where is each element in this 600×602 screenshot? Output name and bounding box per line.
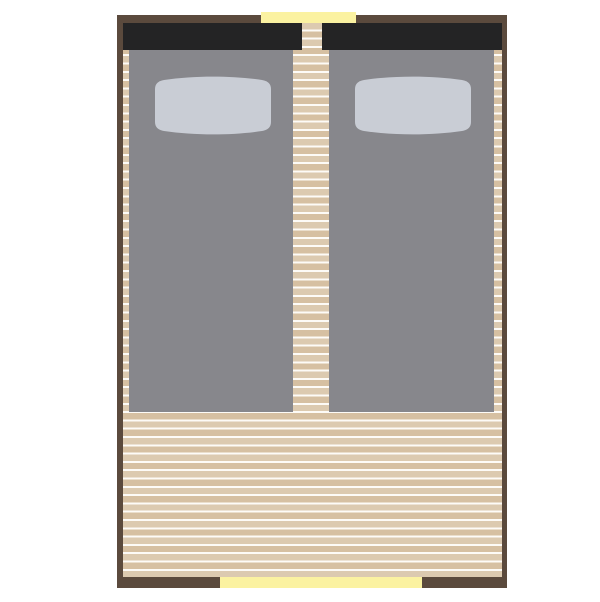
- floor-plan-canvas: [0, 0, 600, 602]
- right-bed: [329, 50, 494, 412]
- left-pillow-icon: [154, 73, 272, 138]
- pillow-shape: [155, 77, 271, 135]
- room-walls: [117, 15, 507, 588]
- bottom-door-opening: [220, 577, 422, 588]
- left-bed-headboard: [123, 23, 302, 50]
- wood-plank-floor: [123, 23, 502, 577]
- top-window-opening: [261, 12, 356, 23]
- left-bed: [129, 50, 293, 412]
- pillow-shape: [355, 77, 471, 135]
- right-pillow-icon: [354, 73, 472, 138]
- right-bed-headboard: [322, 23, 502, 50]
